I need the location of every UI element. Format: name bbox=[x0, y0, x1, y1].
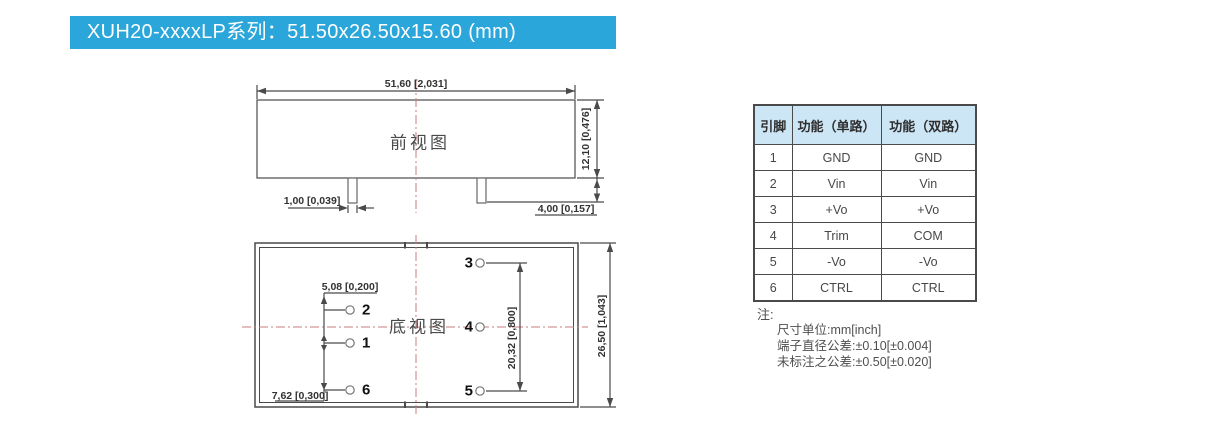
note-terminal-tolerance: 端子直径公差:±0.10[±0.004] bbox=[777, 338, 932, 354]
col-header-single: 功能（单路） bbox=[792, 105, 881, 145]
datasheet-page: XUH20-xxxxLP系列：51.50x26.50x15.60 (mm) bbox=[0, 0, 1209, 429]
front-view-title: 前视图 bbox=[390, 129, 450, 154]
table-row: 2 Vin Vin bbox=[754, 171, 976, 197]
dim-label-pin-length: 4,00 [0,157] bbox=[538, 203, 595, 215]
pin-number-5: 5 bbox=[465, 384, 473, 399]
cell-dual: -Vo bbox=[881, 249, 976, 275]
table-row: 5 -Vo -Vo bbox=[754, 249, 976, 275]
pin-number-2: 2 bbox=[362, 303, 370, 318]
note-units: 尺寸单位:mm[inch] bbox=[777, 322, 932, 338]
pin-number-1: 1 bbox=[362, 336, 370, 351]
cell-dual: GND bbox=[881, 145, 976, 171]
cell-pin: 3 bbox=[754, 197, 792, 223]
notes-block: 注: 尺寸单位:mm[inch] 端子直径公差:±0.10[±0.004] 未标… bbox=[757, 307, 932, 370]
col-header-pin: 引脚 bbox=[754, 105, 792, 145]
dim-label-pin-pitch: 5,08 [0,200] bbox=[322, 281, 379, 293]
cell-pin: 6 bbox=[754, 275, 792, 302]
dim-label-pin-col-span: 20,32 [0,800] bbox=[506, 307, 518, 369]
cell-single: +Vo bbox=[792, 197, 881, 223]
pin-number-6: 6 bbox=[362, 383, 370, 398]
cell-dual: COM bbox=[881, 223, 976, 249]
cell-pin: 2 bbox=[754, 171, 792, 197]
bottom-view-title: 底视图 bbox=[389, 313, 449, 338]
table-row: 4 Trim COM bbox=[754, 223, 976, 249]
package-outline-drawing bbox=[0, 0, 1209, 429]
cell-single: CTRL bbox=[792, 275, 881, 302]
cell-single: GND bbox=[792, 145, 881, 171]
table-header-row: 引脚 功能（单路） 功能（双路） bbox=[754, 105, 976, 145]
note-general-tolerance: 未标注之公差:±0.50[±0.020] bbox=[777, 354, 932, 370]
cell-single: -Vo bbox=[792, 249, 881, 275]
cell-dual: CTRL bbox=[881, 275, 976, 302]
col-header-dual: 功能（双路） bbox=[881, 105, 976, 145]
table-row: 1 GND GND bbox=[754, 145, 976, 171]
dim-label-pin-row-span: 7,62 [0,300] bbox=[272, 390, 329, 402]
cell-pin: 1 bbox=[754, 145, 792, 171]
dim-label-pin-diameter: 1,00 [0,039] bbox=[284, 195, 341, 207]
cell-dual: +Vo bbox=[881, 197, 976, 223]
table-row: 6 CTRL CTRL bbox=[754, 275, 976, 302]
cell-single: Vin bbox=[792, 171, 881, 197]
cell-dual: Vin bbox=[881, 171, 976, 197]
table-row: 3 +Vo +Vo bbox=[754, 197, 976, 223]
pin-number-4: 4 bbox=[465, 320, 473, 335]
pin-number-3: 3 bbox=[465, 256, 473, 271]
pin-function-table: 引脚 功能（单路） 功能（双路） 1 GND GND 2 Vin Vin 3 +… bbox=[753, 104, 977, 302]
dim-label-depth: 26,50 [1,043] bbox=[596, 295, 608, 357]
dim-label-height: 12,10 [0,476] bbox=[580, 108, 592, 170]
notes-label: 注: bbox=[757, 307, 932, 322]
cell-pin: 4 bbox=[754, 223, 792, 249]
cell-single: Trim bbox=[792, 223, 881, 249]
dim-label-width: 51,60 [2,031] bbox=[385, 78, 447, 90]
cell-pin: 5 bbox=[754, 249, 792, 275]
